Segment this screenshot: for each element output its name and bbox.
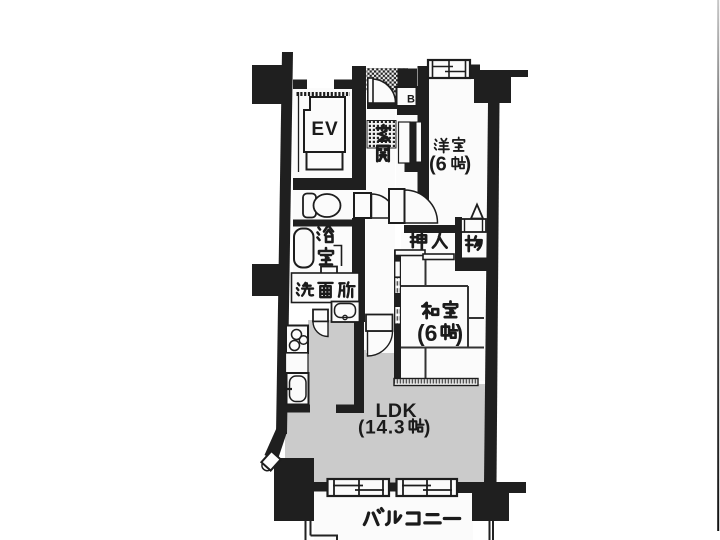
svg-text:): ) xyxy=(424,418,430,439)
svg-text:): ) xyxy=(465,154,472,176)
svg-text:): ) xyxy=(456,320,464,346)
svg-text:(14.3: (14.3 xyxy=(358,418,405,439)
svg-text:(6: (6 xyxy=(417,320,437,346)
svg-text:B: B xyxy=(407,94,415,106)
svg-text:(6: (6 xyxy=(429,154,447,176)
svg-text:EV: EV xyxy=(311,119,338,140)
